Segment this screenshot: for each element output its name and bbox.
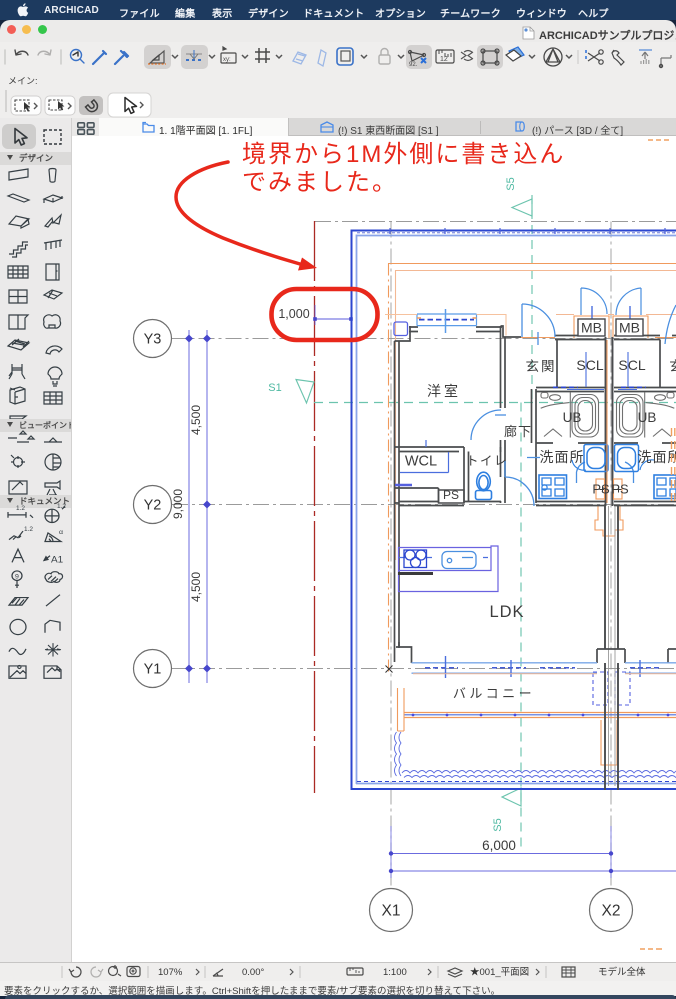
svg-text:WCL: WCL xyxy=(405,454,437,470)
svg-text:12: 12 xyxy=(440,56,448,63)
svg-text:xy:: xy: xyxy=(223,57,231,63)
svg-text:1.2: 1.2 xyxy=(57,503,67,510)
svg-text:S5: S5 xyxy=(505,177,517,190)
svg-text:洋室: 洋室 xyxy=(427,383,461,399)
svg-text:92.: 92. xyxy=(409,62,418,68)
svg-text:6,000: 6,000 xyxy=(482,838,516,853)
svg-text:Y3: Y3 xyxy=(144,332,162,348)
svg-text:バルコニー: バルコニー xyxy=(453,686,535,701)
svg-text:4,500: 4,500 xyxy=(189,405,203,435)
svg-text:1:100: 1:100 xyxy=(383,967,407,978)
svg-text:デザイン: デザイン xyxy=(19,153,54,163)
svg-text:PS: PS xyxy=(443,488,459,502)
svg-text:MB: MB xyxy=(581,320,602,336)
svg-text:X1: X1 xyxy=(382,903,401,920)
svg-text:LDK: LDK xyxy=(489,603,524,621)
svg-text:MB: MB xyxy=(619,320,640,336)
svg-text:9,000: 9,000 xyxy=(171,489,185,519)
svg-text:UB: UB xyxy=(563,410,582,425)
svg-text:洗面所: 洗面所 xyxy=(540,449,585,465)
svg-text:Y2: Y2 xyxy=(144,498,162,514)
svg-text:SCL: SCL xyxy=(576,357,603,373)
svg-text:Y1: Y1 xyxy=(144,662,162,678)
svg-text:1.2: 1.2 xyxy=(16,505,26,512)
svg-text:でみました。: でみました。 xyxy=(242,169,398,196)
svg-text:S5: S5 xyxy=(492,818,504,831)
svg-text:UB: UB xyxy=(638,410,657,425)
svg-text:モデル全体: モデル全体 xyxy=(598,966,646,978)
svg-text:A1: A1 xyxy=(51,555,63,566)
svg-text:PS: PS xyxy=(611,482,629,497)
svg-text:9: 9 xyxy=(15,574,19,581)
svg-text:ビューポイント: ビューポイント xyxy=(19,420,71,430)
svg-text:S1: S1 xyxy=(268,382,281,394)
svg-text:洗面所: 洗面所 xyxy=(638,449,676,465)
svg-text:X2: X2 xyxy=(602,903,621,920)
svg-text:1.2: 1.2 xyxy=(24,526,34,533)
svg-text:境界から1M外側に書き込ん: 境界から1M外側に書き込ん xyxy=(242,141,565,168)
svg-text:玄関: 玄関 xyxy=(526,358,557,374)
svg-text:廊下: 廊下 xyxy=(504,424,532,439)
svg-text:α: α xyxy=(59,529,63,536)
svg-text:PS: PS xyxy=(592,482,610,497)
svg-text:玄: 玄 xyxy=(669,358,676,374)
svg-text:★001_平面図: ★001_平面図 xyxy=(470,967,529,978)
svg-text:0.00°: 0.00° xyxy=(242,967,264,978)
svg-text:107%: 107% xyxy=(158,967,183,978)
svg-text:4,500: 4,500 xyxy=(189,572,203,602)
svg-text:1,000: 1,000 xyxy=(278,307,309,321)
svg-text:SCL: SCL xyxy=(618,357,645,373)
svg-text:トイレ: トイレ xyxy=(466,454,508,468)
